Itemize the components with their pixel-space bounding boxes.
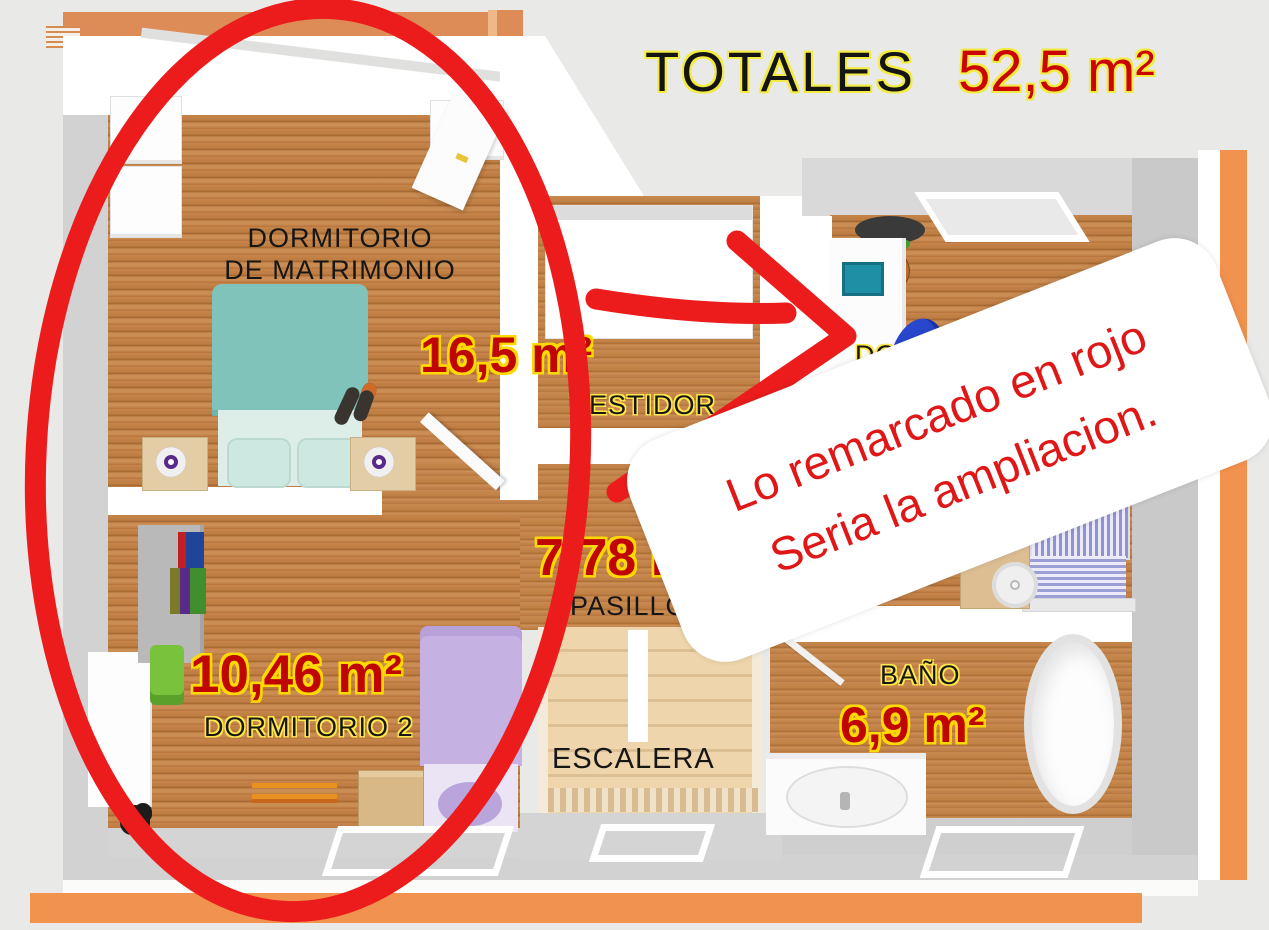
red-arrow-shaft — [596, 299, 786, 313]
floorplan-canvas: TOTALES 52,5 m² DORMITORIO DE MATRIMONIO… — [0, 0, 1269, 930]
red-circle-annotation — [13, 0, 604, 926]
